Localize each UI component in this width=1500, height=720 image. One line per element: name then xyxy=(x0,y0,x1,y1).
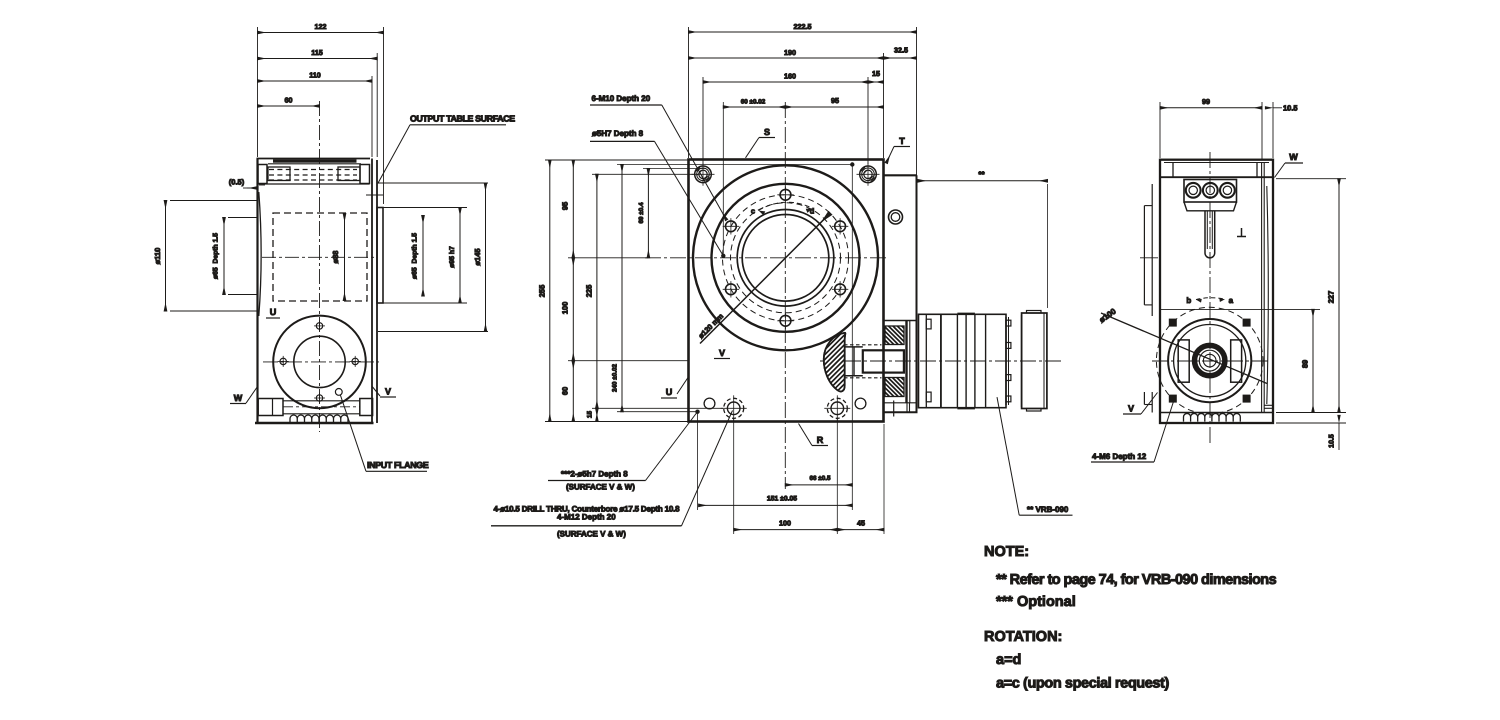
svg-text:160: 160 xyxy=(784,72,796,81)
svg-text:227: 227 xyxy=(1327,291,1336,304)
svg-text:255: 255 xyxy=(538,285,547,298)
svg-text:OUTPUT TABLE SURFACE: OUTPUT TABLE SURFACE xyxy=(410,114,515,124)
svg-text:(0.5): (0.5) xyxy=(229,178,245,187)
svg-text:ø65 Depth 1.5: ø65 Depth 1.5 xyxy=(213,233,220,279)
svg-text:32.5: 32.5 xyxy=(894,46,908,55)
svg-text:99: 99 xyxy=(1202,97,1210,106)
svg-text:T: T xyxy=(899,136,905,146)
svg-text:ø145: ø145 xyxy=(473,248,482,265)
svg-text:122: 122 xyxy=(315,22,327,31)
svg-text:ø110: ø110 xyxy=(153,248,162,265)
svg-text:89: 89 xyxy=(1301,360,1310,368)
svg-text:60: 60 xyxy=(285,96,293,105)
svg-text:ø100: ø100 xyxy=(1098,306,1119,324)
svg-text:***2-ø5h7 Depth 8: ***2-ø5h7 Depth 8 xyxy=(561,470,628,479)
svg-text:69 ±0.4: 69 ±0.4 xyxy=(638,202,645,223)
svg-text:225: 225 xyxy=(585,285,594,298)
svg-text:100: 100 xyxy=(779,519,791,528)
svg-text:ø5H7 Depth 8: ø5H7 Depth 8 xyxy=(592,129,644,138)
svg-text:10.5: 10.5 xyxy=(1283,104,1298,113)
svg-text:95: 95 xyxy=(561,202,570,210)
svg-text:190: 190 xyxy=(784,48,796,57)
svg-text:151 ±0.05: 151 ±0.05 xyxy=(767,496,797,503)
svg-text:ø95 h7: ø95 h7 xyxy=(449,246,456,268)
svg-text:ROTATION:: ROTATION: xyxy=(984,629,1062,645)
svg-text:(SURFACE V & W): (SURFACE V & W) xyxy=(566,483,635,492)
svg-text:W: W xyxy=(234,393,243,403)
svg-text:d: d xyxy=(810,207,815,216)
svg-text:**: ** xyxy=(978,170,985,179)
svg-text:a: a xyxy=(1229,296,1234,305)
svg-text:4-M12 Depth 20: 4-M12 Depth 20 xyxy=(557,513,616,522)
svg-text:100: 100 xyxy=(561,302,570,315)
svg-text:240 ±0.02: 240 ±0.02 xyxy=(612,364,619,392)
svg-text:60: 60 xyxy=(561,387,570,395)
svg-text:ø65 Depth 1.5: ø65 Depth 1.5 xyxy=(412,233,419,279)
svg-text:V: V xyxy=(1128,404,1134,414)
svg-text:V: V xyxy=(719,348,725,358)
svg-text:45: 45 xyxy=(857,519,865,528)
svg-text:115: 115 xyxy=(311,48,323,57)
svg-text:a=c (upon special request): a=c (upon special request) xyxy=(996,676,1169,692)
svg-text:(SURFACE V & W): (SURFACE V & W) xyxy=(557,530,626,539)
svg-text:W: W xyxy=(1289,152,1298,162)
svg-text:15: 15 xyxy=(872,69,880,78)
svg-text:U: U xyxy=(666,387,673,397)
svg-text:10.5: 10.5 xyxy=(1329,434,1336,448)
svg-text:95: 95 xyxy=(831,96,839,105)
svg-text:4-M6 Depth 12: 4-M6 Depth 12 xyxy=(1092,452,1147,461)
svg-text:a=d: a=d xyxy=(996,652,1021,668)
svg-text:U: U xyxy=(270,307,277,317)
svg-text:15: 15 xyxy=(587,411,594,419)
svg-text:** Refer to page 74, for VRB-0: ** Refer to page 74, for VRB-090 dimensi… xyxy=(996,572,1277,588)
svg-text:INPUT FLANGE: INPUT FLANGE xyxy=(367,460,429,470)
svg-text:** VRB-090: ** VRB-090 xyxy=(1027,505,1069,514)
svg-text:*** Optional: *** Optional xyxy=(996,594,1076,610)
svg-text:6-M10 Depth 20: 6-M10 Depth 20 xyxy=(592,94,651,103)
svg-text:60 ±0.02: 60 ±0.02 xyxy=(741,99,766,106)
svg-text:R: R xyxy=(817,435,824,445)
svg-text:66 ±0.5: 66 ±0.5 xyxy=(810,475,831,482)
svg-text:NOTE:: NOTE: xyxy=(984,544,1029,560)
svg-text:c: c xyxy=(751,207,755,216)
svg-text:110: 110 xyxy=(309,71,321,80)
svg-text:b: b xyxy=(1186,296,1191,305)
svg-text:222.5: 222.5 xyxy=(794,22,812,31)
svg-text:S: S xyxy=(764,127,770,137)
svg-text:V: V xyxy=(385,387,391,397)
